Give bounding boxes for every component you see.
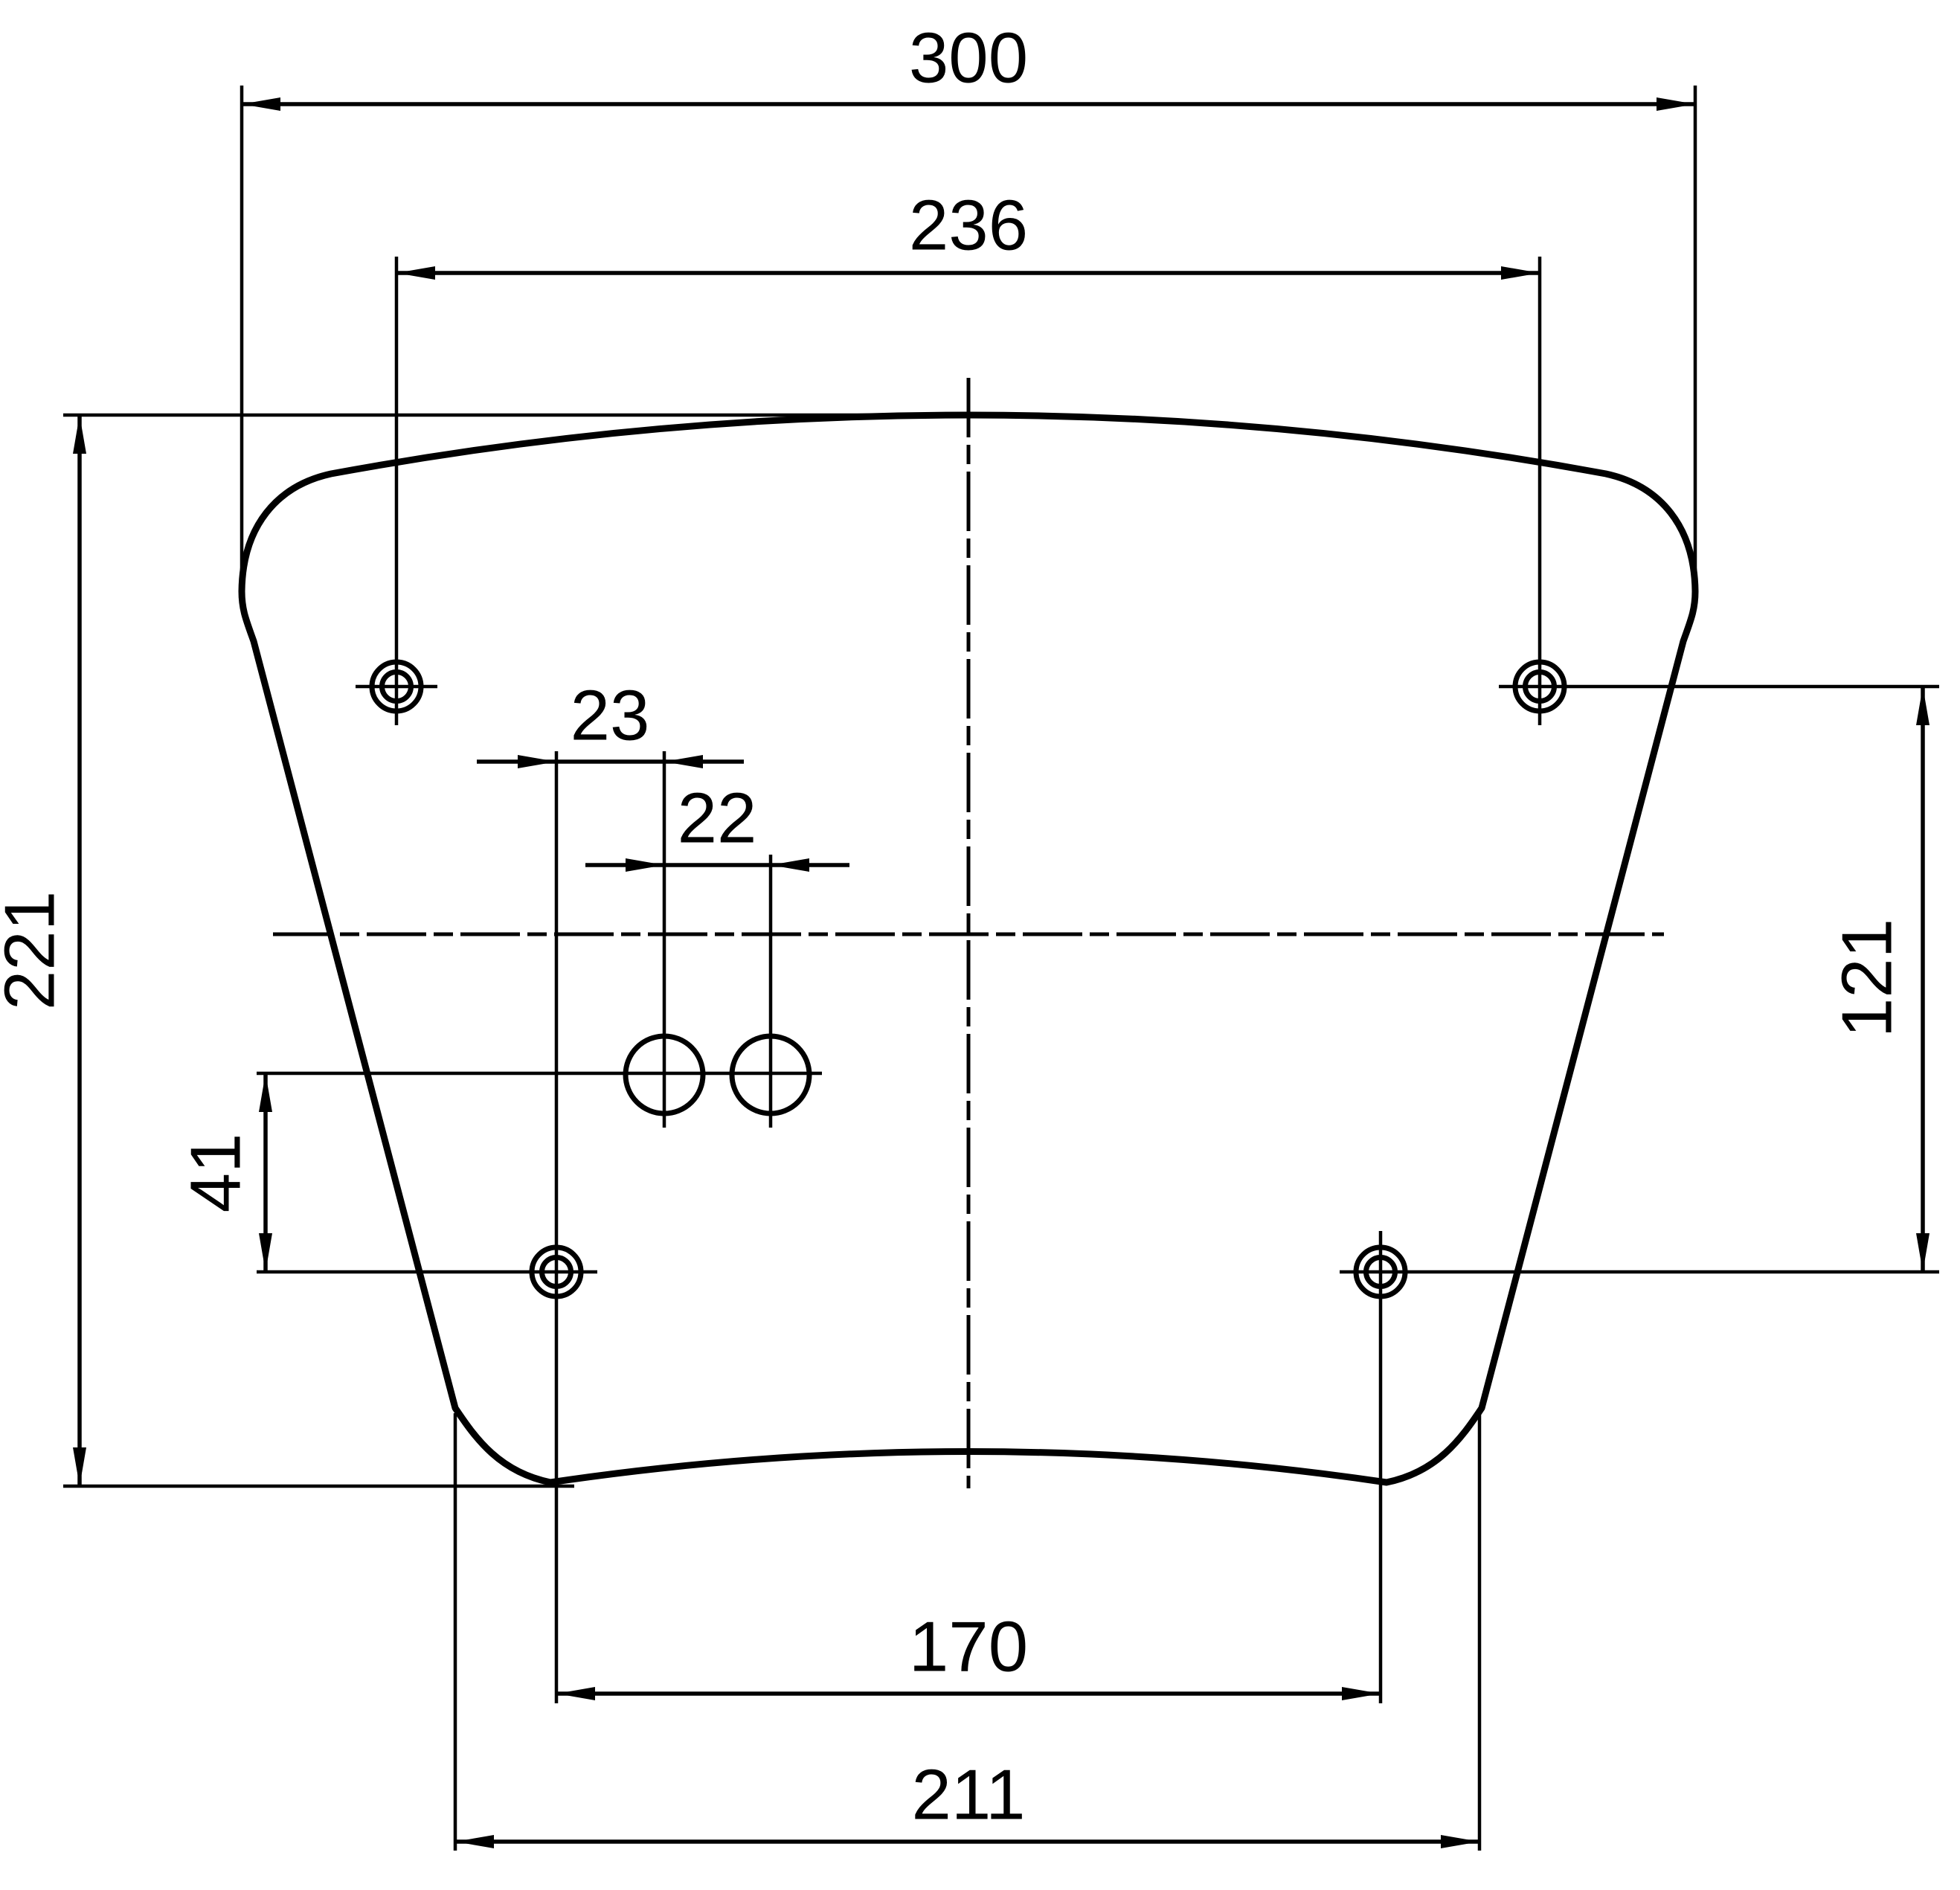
dim-label-211: 211 xyxy=(911,1755,1025,1835)
dim-label-41: 41 xyxy=(176,1134,256,1213)
dim-label-221: 221 xyxy=(0,891,70,1010)
technical-drawing-page: 300236221121232241170211 xyxy=(0,0,1960,1886)
dim-label-22: 22 xyxy=(678,779,757,858)
dim-label-170: 170 xyxy=(909,1607,1028,1687)
dim-label-121: 121 xyxy=(1828,919,1907,1038)
technical-drawing-canvas: 300236221121232241170211 xyxy=(0,0,1960,1886)
dim-label-23: 23 xyxy=(571,676,650,756)
dim-label-300: 300 xyxy=(909,19,1028,98)
dim-label-236: 236 xyxy=(909,186,1028,266)
drawing-background xyxy=(0,0,1960,1886)
